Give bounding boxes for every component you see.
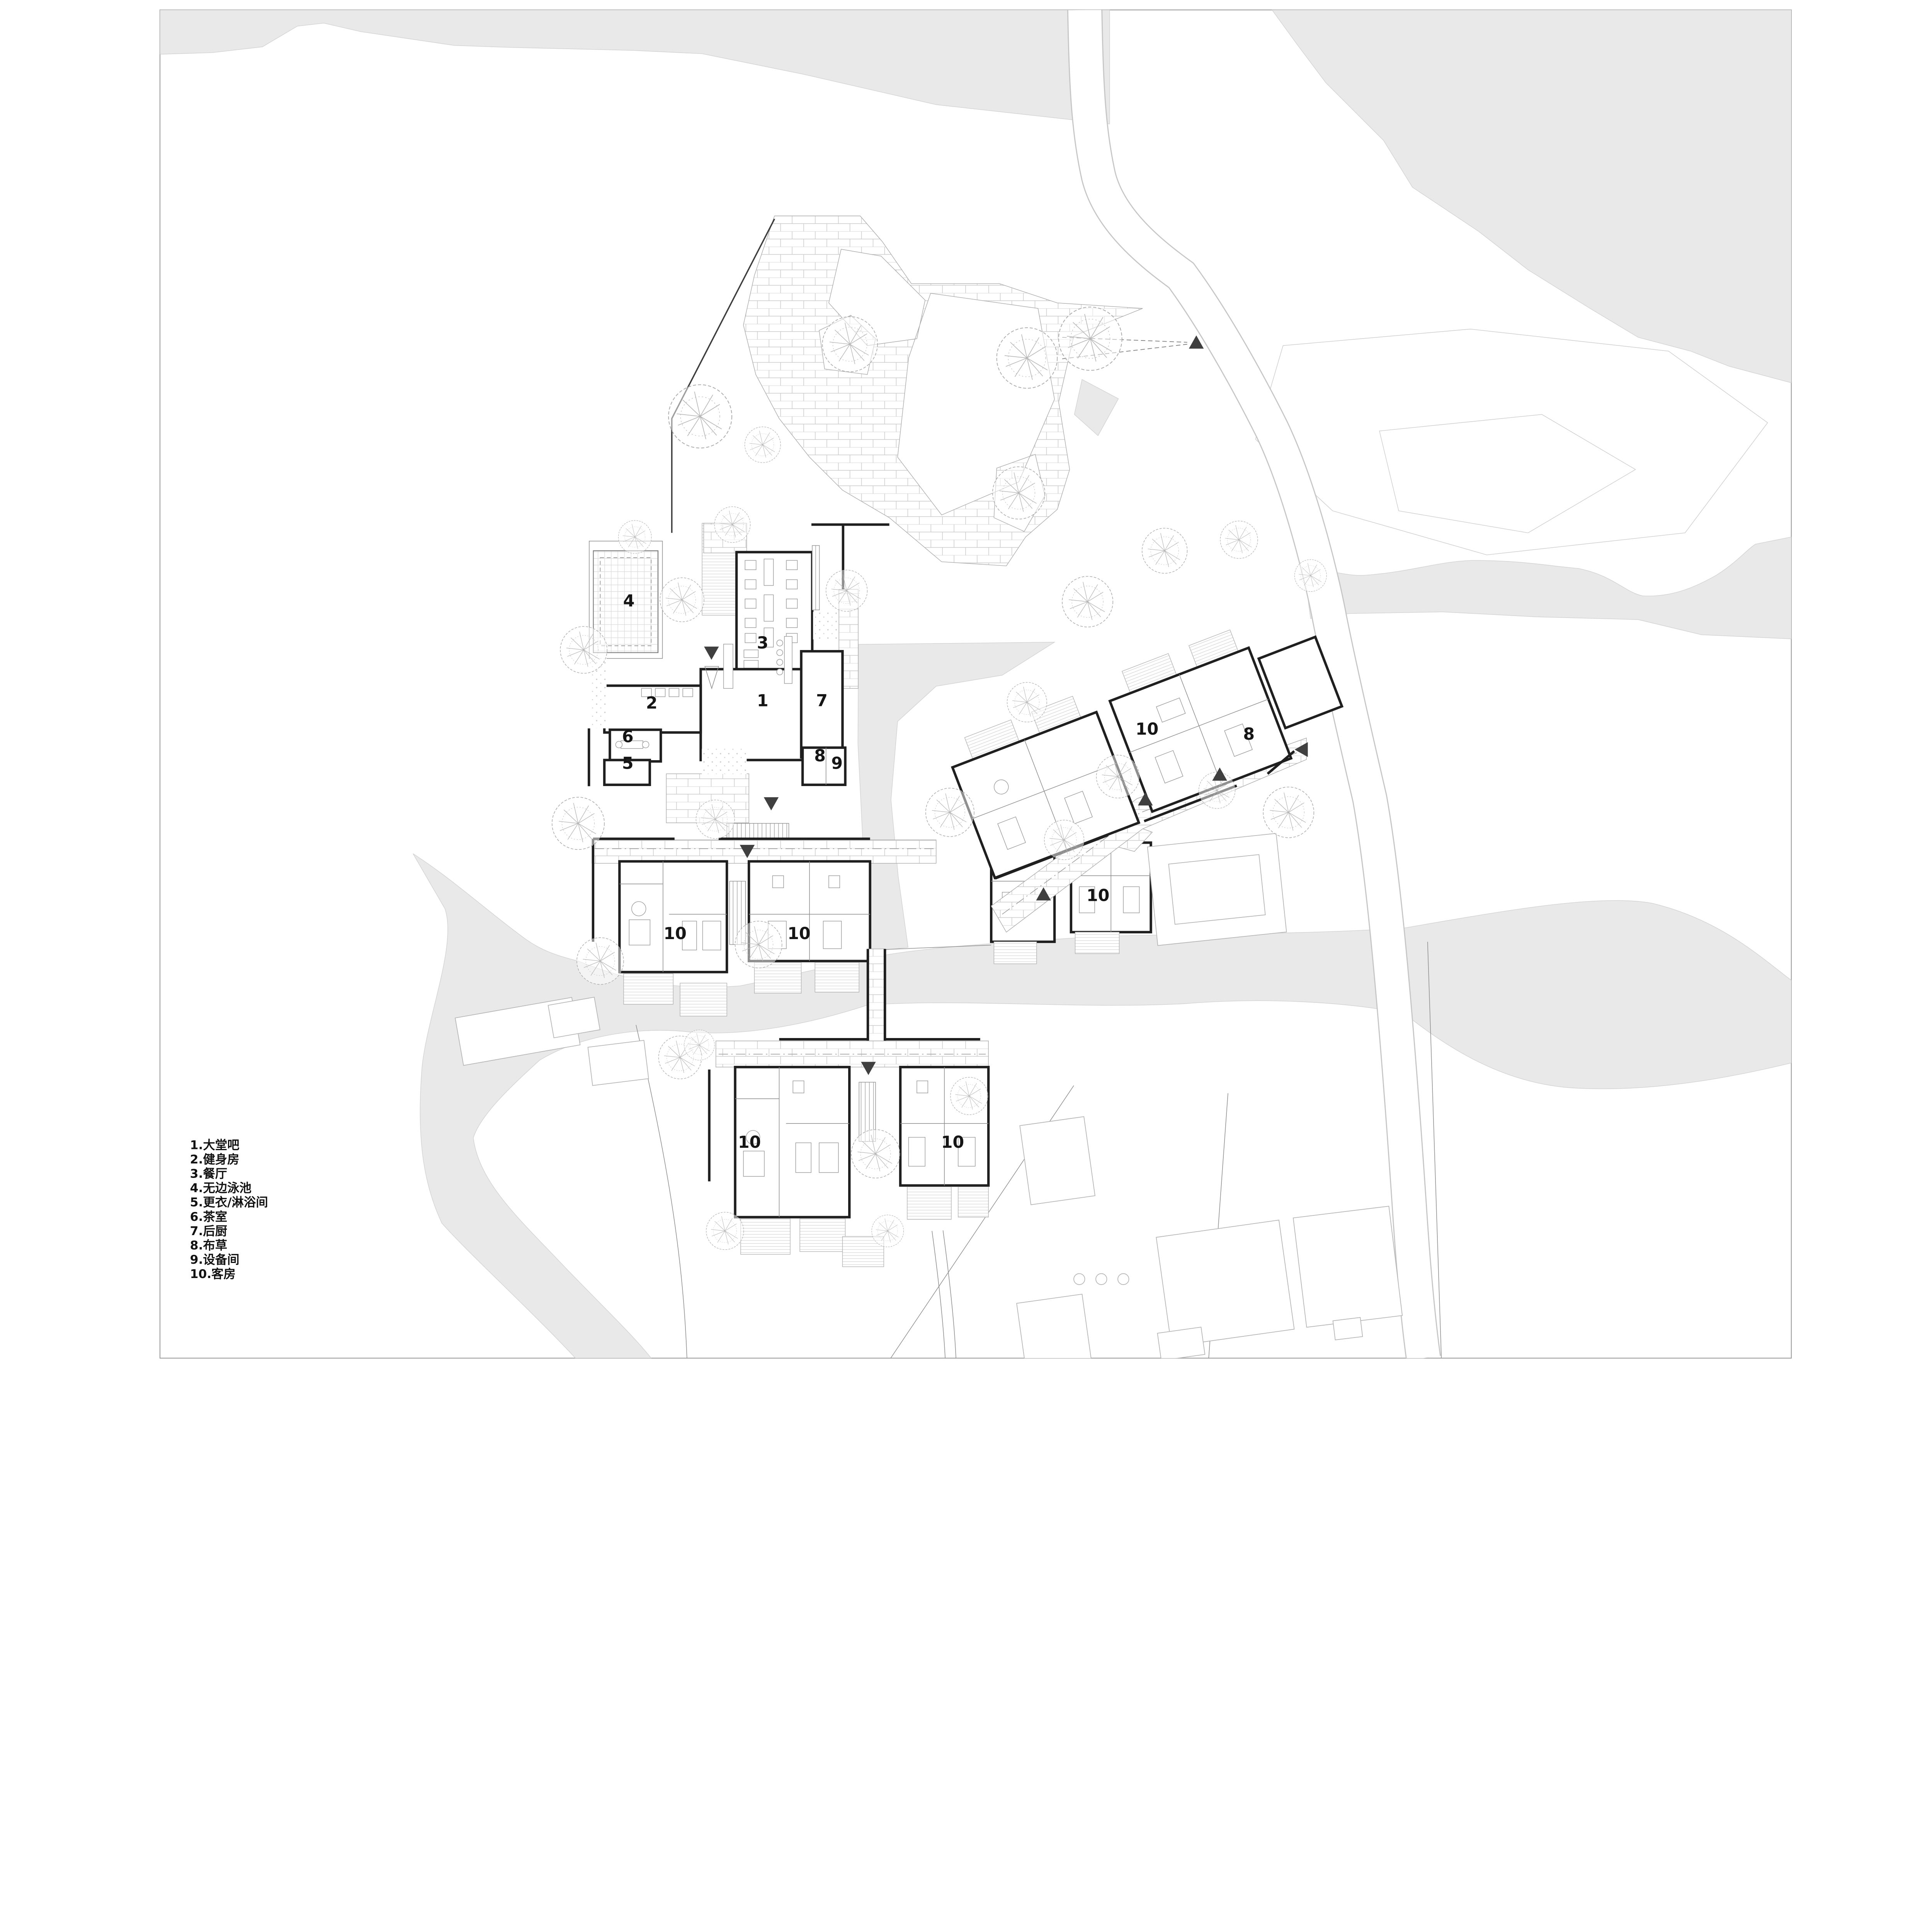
tree-symbol — [822, 317, 878, 372]
legend-item: 2.健身房 — [190, 1153, 240, 1167]
tree-symbol — [660, 578, 704, 622]
courtyard-house — [1148, 833, 1287, 945]
tree-symbol — [1142, 528, 1187, 574]
restaurant-side-stair — [812, 546, 820, 610]
legend-item: 7.后厨 — [190, 1224, 227, 1238]
room-label-restaurant: 3 — [757, 633, 769, 653]
tree-symbol — [668, 385, 732, 448]
tree-symbol — [706, 1212, 744, 1250]
tree-symbol — [1294, 560, 1327, 592]
room-label-linen-main: 8 — [814, 746, 826, 766]
legend-item: 9.设备间 — [190, 1253, 240, 1267]
tree-symbol — [577, 938, 624, 984]
room-label-guest-bottom-left: 10 — [738, 1133, 761, 1152]
tree-symbol — [872, 1215, 904, 1247]
tree-symbol — [552, 797, 604, 849]
legend-item: 5.更衣/淋浴间 — [190, 1196, 268, 1210]
room-label-equipment: 9 — [831, 754, 843, 773]
room-label-guest-center-left: 10 — [663, 924, 687, 943]
tree-symbol — [1220, 521, 1258, 558]
legend-item: 10.客房 — [190, 1267, 236, 1281]
kitchen-island — [784, 636, 792, 684]
tree-symbol — [993, 467, 1045, 519]
tree-symbol — [951, 1077, 988, 1115]
lobby-planter-bench — [724, 644, 733, 689]
room-label-kitchen: 7 — [816, 691, 828, 711]
room-label-changing: 5 — [622, 754, 634, 773]
tree-symbol — [745, 427, 781, 463]
tree-symbol — [1044, 820, 1084, 860]
tree-symbol — [1062, 576, 1113, 627]
room-label-tea: 6 — [622, 727, 634, 746]
terrace — [994, 942, 1036, 964]
legend-item: 1.大堂吧 — [190, 1138, 240, 1152]
tree-symbol — [714, 507, 750, 543]
tree-symbol — [560, 626, 607, 673]
tree-symbol — [735, 921, 782, 968]
room-label-gym: 2 — [646, 693, 658, 713]
legend-item: 3.餐厅 — [190, 1167, 227, 1181]
tree-symbol — [826, 570, 867, 611]
room-label-pool: 4 — [623, 591, 635, 611]
room-label-guest-east: 10 — [1136, 720, 1159, 739]
site-plan-canvas: 1 2 3 4 5 6 7 8 9 10 10 10 10 10 10 8 1.… — [0, 0, 1932, 1367]
tree-symbol — [851, 1130, 900, 1178]
entry-planting — [702, 749, 747, 774]
lobby-bar-room — [701, 669, 812, 760]
east-court-planting — [813, 612, 839, 639]
terrace — [1075, 932, 1119, 954]
room-label-guest-bottom-right: 10 — [941, 1133, 964, 1152]
room-label-linen-east: 8 — [1243, 725, 1255, 744]
room-label-guest-center-right: 10 — [787, 924, 811, 943]
tree-symbol — [926, 788, 974, 836]
room-label-lobby-bar: 1 — [757, 691, 769, 711]
tree-symbol — [997, 328, 1057, 388]
legend-item: 6.茶室 — [190, 1210, 227, 1224]
room-label-guest-lower-right: 10 — [1087, 886, 1110, 905]
legend-item: 8.布草 — [190, 1239, 227, 1253]
legend-item: 4.无边泳池 — [190, 1181, 252, 1195]
tree-symbol — [696, 800, 735, 839]
drawing-sheet: 1 2 3 4 5 6 7 8 9 10 10 10 10 10 10 8 1.… — [0, 0, 1932, 1367]
tree-symbol — [684, 1030, 714, 1060]
tree-symbol — [1096, 755, 1139, 798]
walkway-paving — [592, 840, 936, 863]
tree-symbol — [1263, 787, 1314, 837]
bridge-corridor — [868, 949, 885, 1047]
guest-house-a — [619, 861, 727, 972]
tree-symbol — [1059, 307, 1122, 370]
tree-symbol — [618, 521, 651, 554]
tree-symbol — [1007, 682, 1047, 722]
